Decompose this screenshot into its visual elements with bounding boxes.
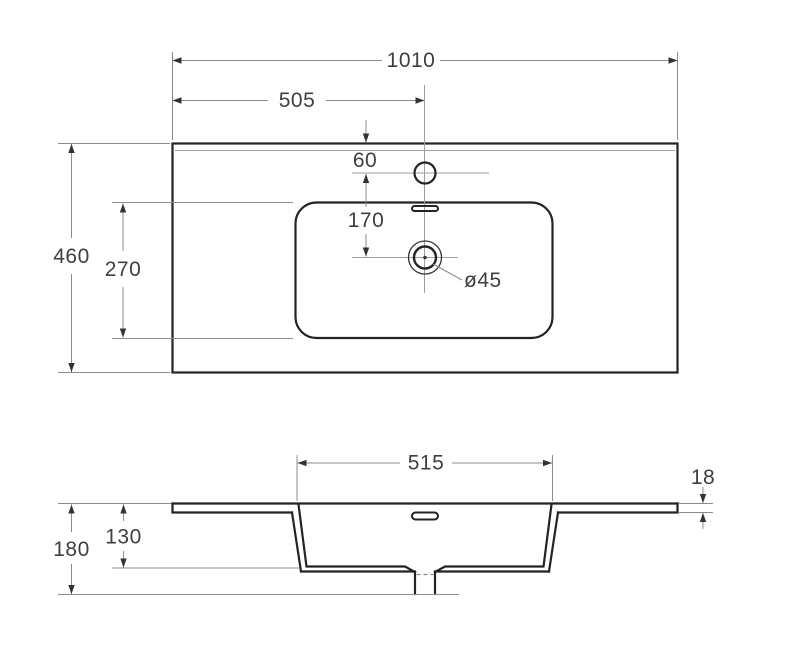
drain-center-dot <box>423 256 427 260</box>
dim-basin-front-back: 270 <box>105 203 293 339</box>
dim-label-faucet-center-from-left: 505 <box>279 89 316 112</box>
technical-drawing-canvas: 1010 505 60 170 460 <box>0 0 800 650</box>
dim-label-faucet-to-drain: 170 <box>348 209 385 232</box>
overflow-slot-section <box>412 513 438 520</box>
dim-label-drain-diameter: ø45 <box>464 269 502 292</box>
section-view: 515 18 130 180 <box>53 452 715 595</box>
basin-inner-wall-right <box>435 505 552 573</box>
countertop-bottom-right <box>558 504 678 513</box>
dim-label-faucet-from-back-edge: 60 <box>353 149 377 172</box>
dim-label-overall-height: 180 <box>53 538 90 561</box>
dim-faucet-to-drain: 170 <box>348 174 385 257</box>
dim-faucet-from-back-edge: 60 <box>353 120 377 172</box>
top-view: 1010 505 60 170 460 <box>53 49 677 373</box>
drain-leader-line <box>433 264 462 280</box>
basin-inner-wall-left <box>299 505 416 573</box>
dim-overall-height: 180 <box>53 504 459 595</box>
dim-basin-depth: 130 <box>105 505 299 569</box>
dim-label-overall-width: 1010 <box>387 49 436 72</box>
dim-label-basin-front-back: 270 <box>105 258 142 281</box>
washbasin-drawing: 1010 505 60 170 460 <box>0 0 800 650</box>
dim-label-countertop-thickness: 18 <box>691 466 715 489</box>
dim-countertop-thickness: 18 <box>679 466 715 529</box>
dim-basin-width: 515 <box>297 452 553 502</box>
dim-label-overall-depth: 460 <box>53 245 90 268</box>
dim-label-basin-width: 515 <box>408 452 445 475</box>
dim-faucet-center-from-left: 505 <box>173 89 425 112</box>
countertop-bottom-left <box>173 504 293 513</box>
dim-label-basin-depth: 130 <box>105 526 142 549</box>
